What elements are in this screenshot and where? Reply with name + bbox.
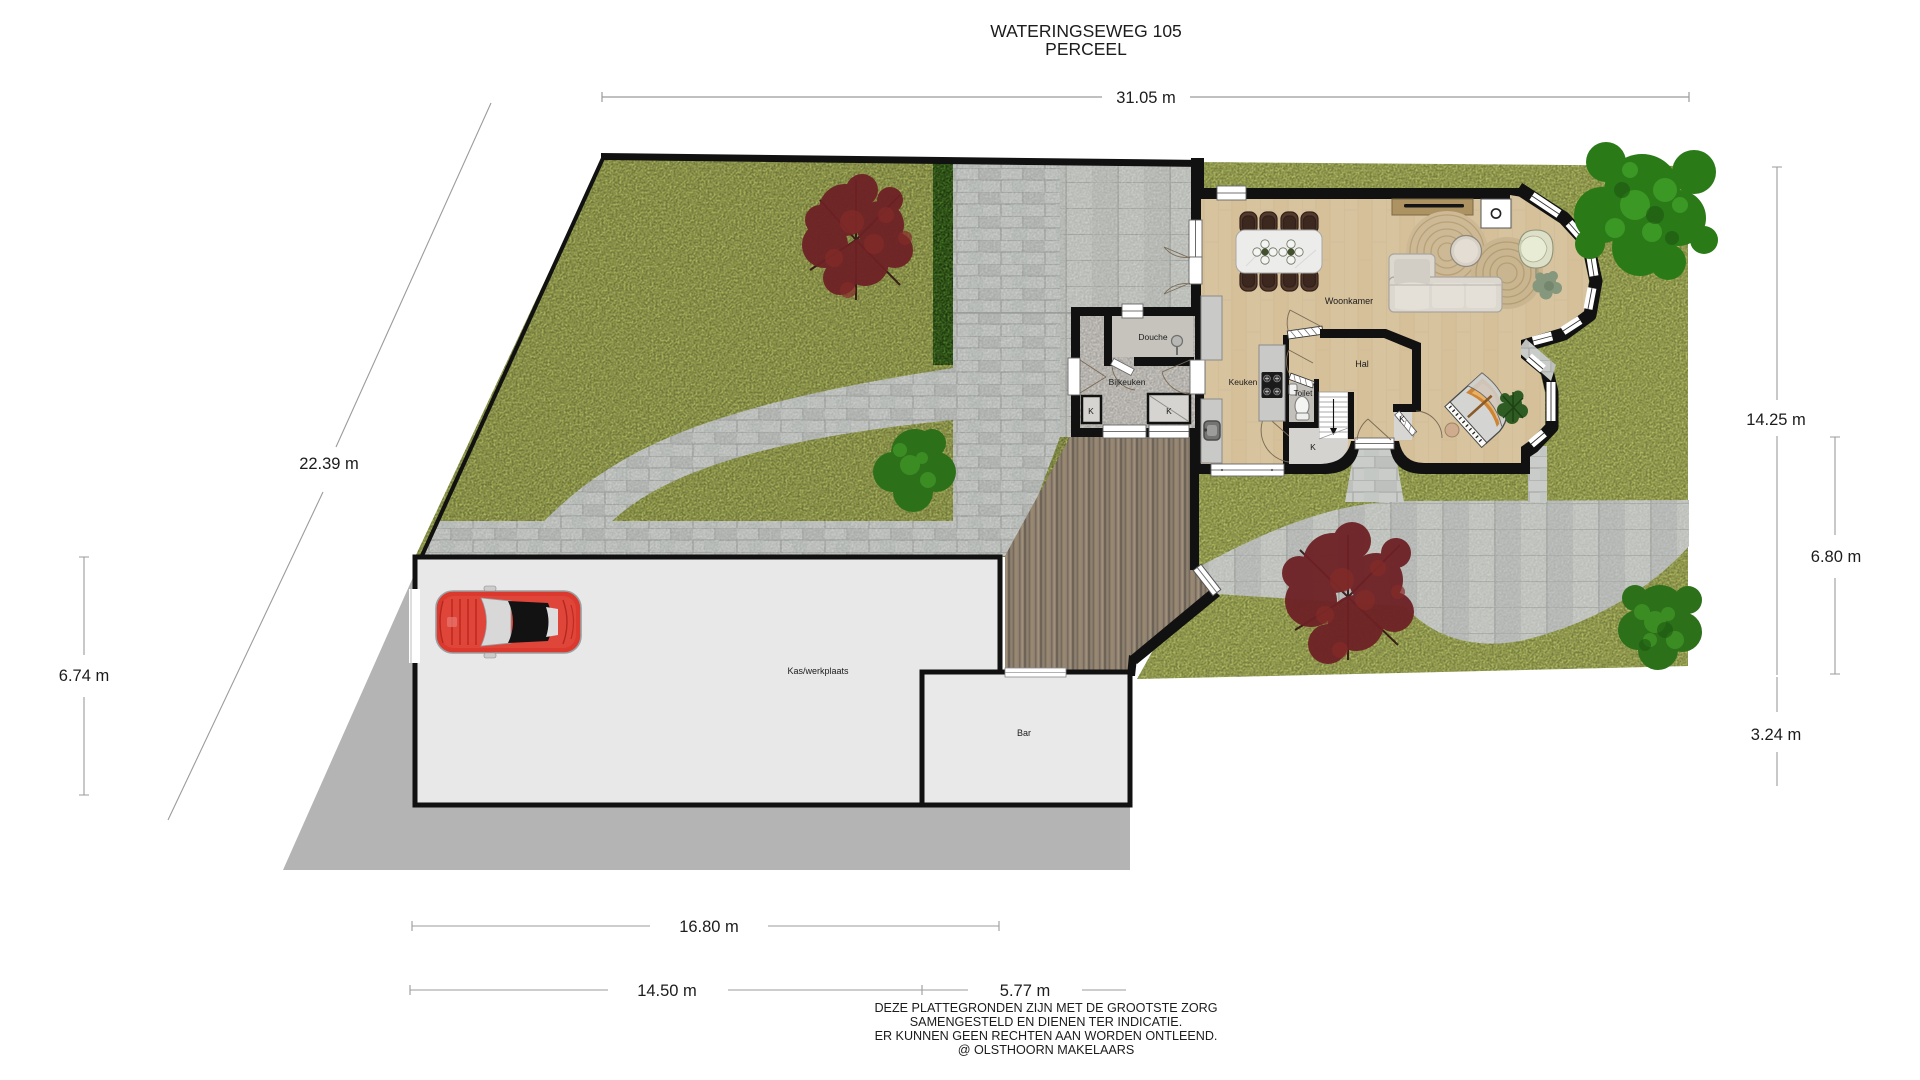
svg-text:PERCEEL: PERCEEL: [1045, 39, 1127, 59]
svg-text:ER KUNNEN GEEN RECHTEN AAN WOR: ER KUNNEN GEEN RECHTEN AAN WORDEN ONTLEE…: [875, 1029, 1218, 1043]
svg-text:K: K: [1310, 442, 1316, 452]
svg-text:Toilet: Toilet: [1294, 389, 1313, 398]
svg-text:SAMENGESTELD EN DIENEN TER IND: SAMENGESTELD EN DIENEN TER INDICATIE.: [910, 1015, 1182, 1029]
svg-text:K: K: [1166, 406, 1172, 416]
svg-text:Woonkamer: Woonkamer: [1325, 296, 1373, 306]
svg-text:WATERINGSEWEG 105: WATERINGSEWEG 105: [990, 21, 1182, 41]
svg-text:14.25 m: 14.25 m: [1746, 411, 1806, 429]
svg-text:3.24 m: 3.24 m: [1751, 726, 1801, 744]
svg-text:22.39 m: 22.39 m: [299, 455, 359, 473]
svg-text:16.80 m: 16.80 m: [679, 918, 739, 936]
svg-text:Bar: Bar: [1017, 728, 1031, 738]
svg-text:6.74 m: 6.74 m: [59, 667, 109, 685]
svg-text:K: K: [1088, 406, 1094, 416]
svg-text:Kas/werkplaats: Kas/werkplaats: [787, 666, 849, 676]
svg-text:K: K: [1399, 414, 1405, 424]
svg-text:14.50 m: 14.50 m: [637, 982, 697, 1000]
svg-text:6.80 m: 6.80 m: [1811, 548, 1861, 566]
svg-text:Keuken: Keuken: [1229, 377, 1258, 387]
svg-text:DEZE PLATTEGRONDEN ZIJN MET DE: DEZE PLATTEGRONDEN ZIJN MET DE GROOTSTE …: [874, 1001, 1217, 1015]
svg-text:Bijkeuken: Bijkeuken: [1109, 377, 1146, 387]
svg-text:Douche: Douche: [1138, 332, 1168, 342]
svg-text:@ OLSTHOORN MAKELAARS: @ OLSTHOORN MAKELAARS: [958, 1043, 1135, 1057]
svg-text:31.05 m: 31.05 m: [1116, 89, 1176, 107]
svg-text:5.77 m: 5.77 m: [1000, 982, 1050, 1000]
svg-text:Hal: Hal: [1355, 359, 1369, 369]
